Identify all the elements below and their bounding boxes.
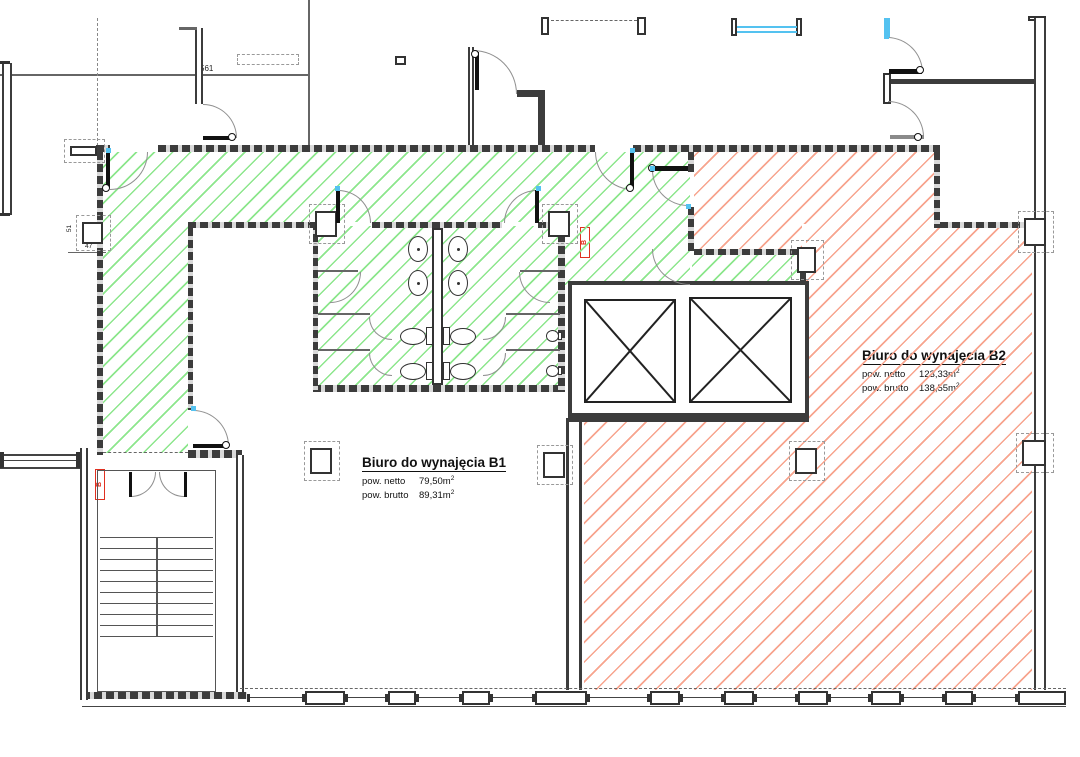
b1-west-wall (236, 455, 244, 692)
toilet (450, 328, 476, 345)
context-wall-stub (395, 56, 406, 65)
door-leaf (535, 190, 539, 223)
context-wall-tick (179, 27, 197, 30)
toilet (450, 363, 476, 380)
context-wall-line (308, 0, 310, 146)
window-pane (490, 697, 535, 698)
window-cap (416, 694, 419, 702)
window-pane (754, 697, 798, 698)
window-pier (724, 691, 754, 705)
context-dashed-axis (97, 18, 99, 146)
building-right-wall (1034, 18, 1046, 690)
lease-area-b2-red-hatch (584, 418, 806, 690)
toilet-tank (426, 362, 433, 380)
window-cap (754, 694, 757, 702)
wall-segment (934, 152, 940, 228)
door-handle (626, 184, 634, 192)
door-handle (914, 133, 922, 141)
wall-segment (313, 385, 565, 392)
sink-drain (417, 282, 420, 285)
window-pier (535, 691, 587, 705)
wc-partition (318, 349, 370, 351)
building-left-wall (80, 448, 88, 700)
window-pane (680, 697, 724, 698)
door-hinge-tick (335, 186, 340, 191)
window-cap (973, 694, 976, 702)
door-hinge-tick (686, 204, 691, 209)
window-pane (416, 697, 462, 698)
door-leaf (336, 190, 340, 223)
left-window-line (0, 454, 80, 456)
sink-drain (417, 248, 420, 251)
elevator-x-icon (586, 301, 674, 401)
context-wall-line (0, 74, 310, 76)
window-pane (345, 697, 388, 698)
context-dashed-outline (237, 54, 299, 65)
door-handle (222, 441, 230, 449)
door-leaf (654, 166, 688, 171)
window-pier (798, 691, 828, 705)
elevator-shaft (584, 299, 676, 403)
column-pier (1024, 218, 1046, 246)
context-wall-stub (637, 17, 646, 35)
column-pier (1022, 440, 1046, 466)
lease-area-b1-common-green-hatch (103, 222, 188, 453)
door-arc (888, 101, 924, 137)
door-hinge-tick (630, 148, 635, 153)
window-pier (388, 691, 416, 705)
window-pier (945, 691, 973, 705)
column-pier (543, 452, 565, 478)
toilet-tank (443, 327, 450, 345)
wall-segment (82, 692, 247, 699)
window-pier (650, 691, 680, 705)
column-pier (82, 222, 103, 244)
toilet (400, 363, 426, 380)
door-handle (916, 66, 924, 74)
urinal-mount (558, 332, 562, 340)
unit-b1-netto: pow. netto79,50m2 (362, 475, 506, 487)
door-arc (473, 50, 517, 94)
bottom-facade-line (82, 706, 1066, 707)
toilet (400, 328, 426, 345)
window-cap (247, 694, 250, 702)
door-hinge-tick (650, 166, 655, 171)
toilet-tank (443, 362, 450, 380)
window-cap (0, 213, 10, 216)
upper-corridor-wall (888, 79, 1038, 84)
window-pier (305, 691, 345, 705)
elevator-x-icon (691, 299, 790, 401)
door-leaf (184, 472, 187, 497)
unit-b1-label: Biuro do wynajęcia B1 pow. netto79,50m2 … (362, 455, 506, 501)
elevator-shaft (689, 297, 792, 403)
unit-b1-brutto: pow. brutto89,31m2 (362, 489, 506, 501)
column-pier (310, 448, 332, 474)
wall-segment (694, 249, 800, 255)
sink-drain (457, 248, 460, 251)
door-hinge-tick (191, 406, 196, 411)
door-hinge-tick (884, 35, 889, 39)
window-cap (901, 694, 904, 702)
column-pier (70, 146, 97, 156)
wall-segment (188, 450, 242, 458)
wc-central-wall (432, 228, 443, 385)
green-area-boundary-dashed (103, 452, 188, 454)
window-cap (490, 694, 493, 702)
window-pane (973, 697, 1018, 698)
window-cap (345, 694, 348, 702)
wall-segment (688, 207, 694, 251)
door-hinge-tick (106, 148, 111, 153)
bottom-wall-dashed-line (240, 688, 1066, 690)
context-wall-segment (538, 90, 545, 147)
wall-segment (188, 228, 193, 410)
wall-segment (188, 222, 315, 228)
window-pane (828, 697, 871, 698)
door-leaf (106, 152, 110, 188)
stair-divider (156, 537, 158, 637)
door-leaf (630, 152, 634, 188)
wc-partition (318, 313, 370, 315)
column-pier (797, 247, 816, 273)
context-wall-stub (541, 17, 549, 35)
dimension-51: 51 (66, 225, 73, 232)
unit-b1-title: Biuro do wynajęcia B1 (362, 455, 506, 472)
left-window-band (2, 63, 12, 215)
window-pier (1018, 691, 1066, 705)
context-double-wall (195, 28, 203, 104)
window-cap (680, 694, 683, 702)
window-pier (462, 691, 490, 705)
column-pier (795, 448, 817, 474)
door-leaf (129, 472, 132, 497)
wc-partition (506, 349, 560, 351)
floor-plan: Biuro do wynajęcia B1 pow. netto79,50m2 … (0, 0, 1080, 757)
wc-partition (506, 313, 560, 315)
wall-segment (633, 145, 940, 152)
window-pane-blue (737, 26, 797, 33)
column-pier (315, 211, 337, 237)
window-pier (871, 691, 901, 705)
window-pane (4, 460, 76, 461)
wall-segment (97, 152, 103, 455)
window-pane (247, 697, 305, 698)
lease-area-b2-red-hatch (694, 152, 934, 224)
left-window-line (0, 467, 80, 469)
context-dashed-line (551, 20, 637, 22)
wall-segment (313, 222, 318, 392)
door-post (883, 73, 891, 104)
column-pier (548, 211, 570, 237)
window-cap (587, 694, 590, 702)
urinal-mount (558, 367, 562, 375)
window-cap (0, 452, 4, 468)
window-cap (0, 61, 10, 64)
door-handle (228, 133, 236, 141)
wall-segment (688, 152, 694, 172)
door-handle (102, 184, 110, 192)
window-pane (587, 697, 650, 698)
window-cap (828, 694, 831, 702)
lease-area-b2-red-hatch (806, 224, 1032, 690)
door-handle (471, 50, 479, 58)
door-hinge-tick (536, 186, 541, 191)
sink-drain (457, 282, 460, 285)
window-pane (901, 697, 945, 698)
wall-segment (158, 145, 595, 152)
toilet-tank (426, 327, 433, 345)
